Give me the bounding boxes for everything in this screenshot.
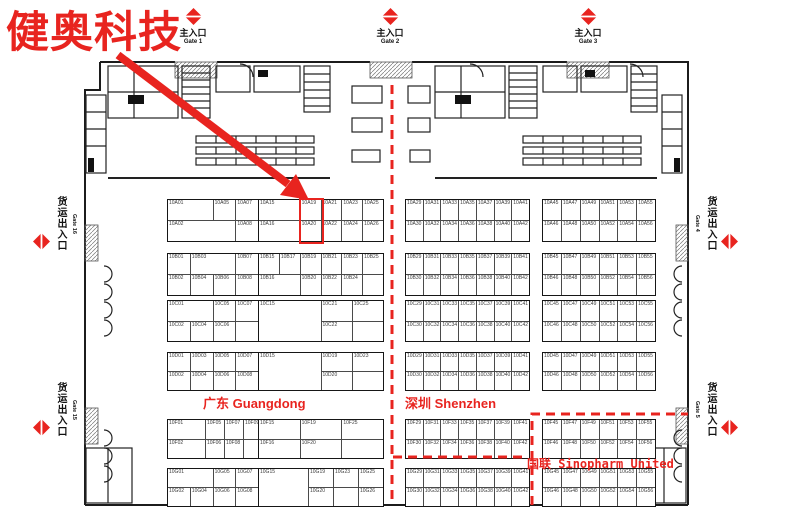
gate-15-label: 货运出入口 — [53, 382, 68, 437]
booth-10G46: 10G46 — [543, 488, 561, 506]
booth-10G26: 10G26 — [359, 488, 383, 506]
booth-10B20: 10B20 — [301, 275, 321, 295]
booth-10D08: 10D08 — [236, 372, 258, 390]
booth-10C15: 10C15 — [259, 301, 321, 341]
booth-10F55: 10F55 — [637, 420, 655, 439]
booth-10D04: 10D04 — [191, 372, 213, 390]
booth-10D40: 10D40 — [495, 372, 512, 390]
booth-10G33: 10G33 — [441, 469, 458, 487]
booth-10D47: 10D47 — [562, 353, 580, 371]
gate-16-number: Gate 16 — [71, 214, 77, 234]
booth-10F40: 10F40 — [495, 440, 512, 459]
booth-10F19: 10F19 — [301, 420, 342, 439]
booth-10G25: 10G25 — [359, 469, 383, 487]
booth-10F05: 10F05 — [206, 420, 224, 439]
booth-10C50: 10C50 — [581, 322, 599, 342]
booth-10D15: 10D15 — [259, 353, 321, 390]
booth-10B53: 10B53 — [618, 254, 636, 274]
booth-10G39: 10G39 — [495, 469, 512, 487]
booth-block-B-R2: 10B4510B4710B4910B5110B5310B5510B4610B48… — [542, 253, 656, 296]
booth-empty — [353, 322, 383, 342]
gate-1: 主入口 Gate 1 — [163, 8, 223, 45]
booth-empty — [353, 372, 383, 390]
booth-10F31: 10F31 — [424, 420, 441, 439]
booth-10B37: 10B37 — [477, 254, 494, 274]
booth-block-D-R2: 10D4510D4710D4910D5110D5310D5510D4610D48… — [542, 352, 656, 391]
booth-10B31: 10B31 — [424, 254, 441, 274]
booth-10B52: 10B52 — [600, 275, 618, 295]
booth-10F38: 10F38 — [477, 440, 494, 459]
booth-block-G-R2: 10G4510G4710G4910G5110G5310G5510G4610G48… — [542, 468, 656, 507]
booth-10A34: 10A34 — [441, 221, 458, 241]
booth-10D36: 10D36 — [459, 372, 476, 390]
booth-block-F-R1: 10F2910F3110F3310F3510F3710F3910F4110F30… — [405, 419, 530, 459]
booth-10A02: 10A02 — [168, 221, 235, 241]
booth-10B51: 10B51 — [600, 254, 618, 274]
booth-10G40: 10G40 — [495, 488, 512, 506]
booth-10G30: 10G30 — [406, 488, 423, 506]
booth-10C47: 10C47 — [562, 301, 580, 321]
gate-2-number: Gate 2 — [381, 39, 399, 45]
booth-10A08: 10A08 — [236, 221, 258, 241]
booth-10C36: 10C36 — [459, 322, 476, 342]
booth-10B07: 10B07 — [236, 254, 258, 274]
booth-10D54: 10D54 — [618, 372, 636, 390]
freight-diamond-icon — [33, 233, 50, 250]
freight-diamond-icon — [33, 419, 50, 436]
gate-2-label: 主入口 — [376, 26, 403, 39]
booth-block-A-R1: 10A2910A3110A3310A3510A3710A3910A4110A30… — [405, 199, 530, 242]
booth-10A39: 10A39 — [495, 200, 512, 220]
booth-10D05: 10D05 — [214, 353, 236, 371]
exhibition-floorplan: 10A0110A0510A0710A0910A0210A0810A1010A15… — [0, 0, 800, 510]
booth-10C52: 10C52 — [600, 322, 618, 342]
booth-10G23: 10G23 — [334, 469, 358, 487]
booth-10D35: 10D35 — [459, 353, 476, 371]
booth-10G04: 10G04 — [191, 488, 213, 506]
booth-10A15: 10A15 — [259, 200, 300, 220]
booth-10D56: 10D56 — [637, 372, 655, 390]
booth-10A50: 10A50 — [581, 221, 599, 241]
booth-10B15: 10B15 — [259, 254, 279, 274]
booth-10A07: 10A07 — [236, 200, 258, 220]
booth-10C05: 10C05 — [214, 301, 236, 321]
gate-15-number: Gate 15 — [71, 400, 77, 420]
booth-10D53: 10D53 — [618, 353, 636, 371]
gate-5: Gate 5 货运出入口 — [694, 382, 738, 437]
booth-10G52: 10G52 — [600, 488, 618, 506]
freight-diamond-icon — [721, 233, 738, 250]
booth-10A40: 10A40 — [495, 221, 512, 241]
booth-10C33: 10C33 — [441, 301, 458, 321]
booth-10C02: 10C02 — [168, 322, 190, 342]
booth-10G05: 10G05 — [214, 469, 236, 487]
booth-10B23: 10B23 — [342, 254, 362, 274]
booth-10C42: 10C42 — [512, 322, 529, 342]
booth-10C22: 10C22 — [322, 322, 352, 342]
booth-block-C-R1: 10C2910C3110C3310C3510C3710C3910C4110C30… — [405, 300, 530, 342]
booth-10A53: 10A53 — [618, 200, 636, 220]
booth-10B40: 10B40 — [495, 275, 512, 295]
booth-10F29: 10F29 — [406, 420, 423, 439]
booth-10D03: 10D03 — [191, 353, 213, 371]
booth-10F47: 10F47 — [562, 420, 580, 439]
booth-10A56: 10A56 — [637, 221, 655, 241]
booth-10G01: 10G01 — [168, 469, 213, 487]
booth-10C55: 10C55 — [637, 301, 655, 321]
gate-4: Gate 4 货运出入口 — [694, 196, 738, 251]
booth-10G38: 10G38 — [477, 488, 494, 506]
booth-empty — [334, 488, 358, 506]
booth-10G56: 10G56 — [637, 488, 655, 506]
gate-2: 主入口 Gate 2 — [360, 8, 420, 45]
booth-10A33: 10A33 — [441, 200, 458, 220]
booth-10C53: 10C53 — [618, 301, 636, 321]
booth-10D34: 10D34 — [441, 372, 458, 390]
booth-10D06: 10D06 — [214, 372, 236, 390]
region-label-guangdong: 广东 Guangdong — [203, 393, 306, 412]
booth-10A31: 10A31 — [424, 200, 441, 220]
booth-10B01: 10B01 — [168, 254, 190, 274]
booth-10D55: 10D55 — [637, 353, 655, 371]
booth-10A29: 10A29 — [406, 200, 423, 220]
booth-10C38: 10C38 — [477, 322, 494, 342]
booth-10D32: 10D32 — [424, 372, 441, 390]
booth-10D49: 10D49 — [581, 353, 599, 371]
booth-10B24: 10B24 — [342, 275, 362, 295]
booth-10C41: 10C41 — [512, 301, 529, 321]
booth-10A42: 10A42 — [512, 221, 529, 241]
booth-10A01: 10A01 — [168, 200, 213, 220]
booth-10G36: 10G36 — [459, 488, 476, 506]
booth-10C35: 10C35 — [459, 301, 476, 321]
booth-10A52: 10A52 — [600, 221, 618, 241]
booth-grid-layer: 10A0110A0510A0710A0910A0210A0810A1010A15… — [0, 0, 800, 510]
booth-10B56: 10B56 — [637, 275, 655, 295]
booth-10F53: 10F53 — [618, 420, 636, 439]
booth-10B22: 10B22 — [322, 275, 342, 295]
booth-10A46: 10A46 — [543, 221, 561, 241]
booth-10C30: 10C30 — [406, 322, 423, 342]
booth-10G07: 10G07 — [236, 469, 258, 487]
booth-10B50: 10B50 — [581, 275, 599, 295]
entrance-diamond-icon — [382, 8, 399, 25]
booth-10B17: 10B17 — [280, 254, 300, 274]
booth-10A05: 10A05 — [214, 200, 236, 220]
booth-10F06: 10F06 — [206, 440, 224, 459]
booth-10B32: 10B32 — [424, 275, 441, 295]
booth-10F49: 10F49 — [581, 420, 599, 439]
gate-5-label: 货运出入口 — [703, 382, 718, 437]
booth-10G42: 10G42 — [512, 488, 529, 506]
booth-10F01: 10F01 — [168, 420, 205, 439]
booth-10D46: 10D46 — [543, 372, 561, 390]
booth-10F16: 10F16 — [259, 440, 300, 459]
booth-10G19: 10G19 — [309, 469, 333, 487]
booth-10B41: 10B41 — [512, 254, 529, 274]
booth-10B19: 10B19 — [301, 254, 321, 274]
booth-block-B-L2: 10B1510B1710B1910B2110B2310B2510B1610B20… — [258, 253, 384, 296]
booth-10F25: 10F25 — [342, 420, 383, 439]
booth-10B21: 10B21 — [322, 254, 342, 274]
booth-10G31: 10G31 — [424, 469, 441, 487]
region-label-shenzhen: 深圳 Shenzhen — [405, 393, 496, 412]
booth-block-G-L2: 10G1510G1910G2310G2510G2010G26 — [258, 468, 384, 507]
gate-16: 货运出入口 Gate 16 — [33, 196, 77, 251]
booth-10G08: 10G08 — [236, 488, 258, 506]
booth-10G29: 10G29 — [406, 469, 423, 487]
booth-10B16: 10B16 — [259, 275, 300, 295]
booth-block-D-L2: 10D1510D1910D2310D20 — [258, 352, 384, 391]
booth-10C25: 10C25 — [353, 301, 383, 321]
booth-10C54: 10C54 — [618, 322, 636, 342]
booth-10C29: 10C29 — [406, 301, 423, 321]
booth-10D37: 10D37 — [477, 353, 494, 371]
gate-4-label: 货运出入口 — [703, 196, 718, 251]
booth-empty — [363, 275, 383, 295]
booth-block-A-R2: 10A4510A4710A4910A5110A5310A5510A4610A48… — [542, 199, 656, 242]
booth-10C31: 10C31 — [424, 301, 441, 321]
booth-10C48: 10C48 — [562, 322, 580, 342]
booth-10D07: 10D07 — [236, 353, 258, 371]
booth-10F33: 10F33 — [441, 420, 458, 439]
booth-10B42: 10B42 — [512, 275, 529, 295]
booth-10D38: 10D38 — [477, 372, 494, 390]
gate-3-number: Gate 3 — [579, 39, 597, 45]
region-label-sinopharm: 国联 Sinopharm United — [527, 455, 674, 472]
booth-10G48: 10G48 — [562, 488, 580, 506]
company-name-overlay: 健奥科技 — [6, 12, 182, 55]
gate-1-label: 主入口 — [179, 26, 206, 39]
booth-10F36: 10F36 — [459, 440, 476, 459]
booth-10B55: 10B55 — [637, 254, 655, 274]
booth-10B06: 10B06 — [214, 275, 236, 295]
booth-10A21: 10A21 — [322, 200, 342, 220]
booth-10D45: 10D45 — [543, 353, 561, 371]
booth-10B45: 10B45 — [543, 254, 561, 274]
booth-10C34: 10C34 — [441, 322, 458, 342]
booth-10B29: 10B29 — [406, 254, 423, 274]
booth-10C37: 10C37 — [477, 301, 494, 321]
booth-10B30: 10B30 — [406, 275, 423, 295]
booth-10G20: 10G20 — [309, 488, 333, 506]
booth-10A41: 10A41 — [512, 200, 529, 220]
gate-5-number: Gate 5 — [694, 401, 700, 418]
booth-10F02: 10F02 — [168, 440, 205, 459]
booth-10A37: 10A37 — [477, 200, 494, 220]
booth-empty — [342, 440, 383, 459]
booth-10B04: 10B04 — [191, 275, 213, 295]
booth-10F45: 10F45 — [543, 420, 561, 439]
booth-10B03: 10B03 — [191, 254, 236, 274]
booth-10A54: 10A54 — [618, 221, 636, 241]
booth-10B54: 10B54 — [618, 275, 636, 295]
booth-10D01: 10D01 — [168, 353, 190, 371]
booth-10A55: 10A55 — [637, 200, 655, 220]
booth-10A26: 10A26 — [363, 221, 383, 241]
booth-10A35: 10A35 — [459, 200, 476, 220]
booth-10A22: 10A22 — [322, 221, 342, 241]
booth-10C49: 10C49 — [581, 301, 599, 321]
booth-10G54: 10G54 — [618, 488, 636, 506]
booth-block-F-L2: 10F1510F1910F2510F1610F20 — [258, 419, 384, 459]
booth-10A23: 10A23 — [342, 200, 362, 220]
gate-3-label: 主入口 — [574, 26, 601, 39]
booth-block-D-R1: 10D2910D3110D3310D3510D3710D3910D4110D30… — [405, 352, 530, 391]
booth-10A30: 10A30 — [406, 221, 423, 241]
entrance-diamond-icon — [580, 8, 597, 25]
booth-10C51: 10C51 — [600, 301, 618, 321]
booth-block-G-R1: 10G2910G3110G3310G3510G3710G3910G4110G30… — [405, 468, 530, 507]
booth-10A48: 10A48 — [562, 221, 580, 241]
booth-10G50: 10G50 — [581, 488, 599, 506]
booth-10D39: 10D39 — [495, 353, 512, 371]
gate-1-number: Gate 1 — [184, 39, 202, 45]
booth-block-C-R2: 10C4510C4710C4910C5110C5310C5510C4610C48… — [542, 300, 656, 342]
booth-10A36: 10A36 — [459, 221, 476, 241]
booth-10D50: 10D50 — [581, 372, 599, 390]
booth-10A49: 10A49 — [581, 200, 599, 220]
booth-10C32: 10C32 — [424, 322, 441, 342]
booth-10G34: 10G34 — [441, 488, 458, 506]
booth-10B35: 10B35 — [459, 254, 476, 274]
booth-10D31: 10D31 — [424, 353, 441, 371]
booth-10C04: 10C04 — [191, 322, 213, 342]
booth-10B38: 10B38 — [477, 275, 494, 295]
booth-10C01: 10C01 — [168, 301, 213, 321]
gate-3: 主入口 Gate 3 — [558, 8, 618, 45]
booth-10F15: 10F15 — [259, 420, 300, 439]
booth-10B47: 10B47 — [562, 254, 580, 274]
gate-15: 货运出入口 Gate 15 — [33, 382, 77, 437]
booth-10C39: 10C39 — [495, 301, 512, 321]
booth-10G35: 10G35 — [459, 469, 476, 487]
booth-10A16: 10A16 — [259, 221, 300, 241]
booth-10B34: 10B34 — [441, 275, 458, 295]
booth-10C56: 10C56 — [637, 322, 655, 342]
booth-10F51: 10F51 — [600, 420, 618, 439]
booth-10F07: 10F07 — [225, 420, 243, 439]
booth-block-F-R2: 10F4510F4710F4910F5110F5310F5510F4610F48… — [542, 419, 656, 459]
booth-10C46: 10C46 — [543, 322, 561, 342]
booth-10B36: 10B36 — [459, 275, 476, 295]
booth-10A38: 10A38 — [477, 221, 494, 241]
booth-10B08: 10B08 — [236, 275, 258, 295]
booth-10B46: 10B46 — [543, 275, 561, 295]
booth-10B33: 10B33 — [441, 254, 458, 274]
entrance-diamond-icon — [185, 8, 202, 25]
gate-4-number: Gate 4 — [694, 215, 700, 232]
booth-10A47: 10A47 — [562, 200, 580, 220]
booth-10F08: 10F08 — [225, 440, 243, 459]
booth-10G06: 10G06 — [214, 488, 236, 506]
booth-10A45: 10A45 — [543, 200, 561, 220]
booth-10D52: 10D52 — [600, 372, 618, 390]
booth-10G02: 10G02 — [168, 488, 190, 506]
booth-10C40: 10C40 — [495, 322, 512, 342]
booth-10C45: 10C45 — [543, 301, 561, 321]
booth-10D19: 10D19 — [322, 353, 352, 371]
booth-10F37: 10F37 — [477, 420, 494, 439]
booth-block-C-L2: 10C1510C2110C2510C22 — [258, 300, 384, 342]
booth-10D23: 10D23 — [353, 353, 383, 371]
booth-10A24: 10A24 — [342, 221, 362, 241]
booth-10D42: 10D42 — [512, 372, 529, 390]
booth-10D51: 10D51 — [600, 353, 618, 371]
gate-16-label: 货运出入口 — [53, 196, 68, 251]
freight-diamond-icon — [721, 419, 738, 436]
booth-10C06: 10C06 — [214, 322, 236, 342]
booth-10F39: 10F39 — [495, 420, 512, 439]
booth-10D29: 10D29 — [406, 353, 423, 371]
booth-10D33: 10D33 — [441, 353, 458, 371]
highlighted-booth-box — [299, 198, 324, 244]
booth-10B48: 10B48 — [562, 275, 580, 295]
booth-10A25: 10A25 — [363, 200, 383, 220]
booth-10B25: 10B25 — [363, 254, 383, 274]
booth-10F41: 10F41 — [512, 420, 529, 439]
booth-10C21: 10C21 — [322, 301, 352, 321]
booth-10G32: 10G32 — [424, 488, 441, 506]
booth-10F32: 10F32 — [424, 440, 441, 459]
booth-10F35: 10F35 — [459, 420, 476, 439]
booth-10B39: 10B39 — [495, 254, 512, 274]
booth-10D41: 10D41 — [512, 353, 529, 371]
booth-10D48: 10D48 — [562, 372, 580, 390]
booth-10G37: 10G37 — [477, 469, 494, 487]
booth-10B02: 10B02 — [168, 275, 190, 295]
booth-10A32: 10A32 — [424, 221, 441, 241]
booth-10F20: 10F20 — [301, 440, 342, 459]
booth-10A51: 10A51 — [600, 200, 618, 220]
booth-10D02: 10D02 — [168, 372, 190, 390]
booth-block-B-R1: 10B2910B3110B3310B3510B3710B3910B4110B30… — [405, 253, 530, 296]
booth-10F30: 10F30 — [406, 440, 423, 459]
booth-10D20: 10D20 — [322, 372, 352, 390]
booth-10F34: 10F34 — [441, 440, 458, 459]
booth-10B49: 10B49 — [581, 254, 599, 274]
booth-10D30: 10D30 — [406, 372, 423, 390]
booth-10G15: 10G15 — [259, 469, 308, 506]
